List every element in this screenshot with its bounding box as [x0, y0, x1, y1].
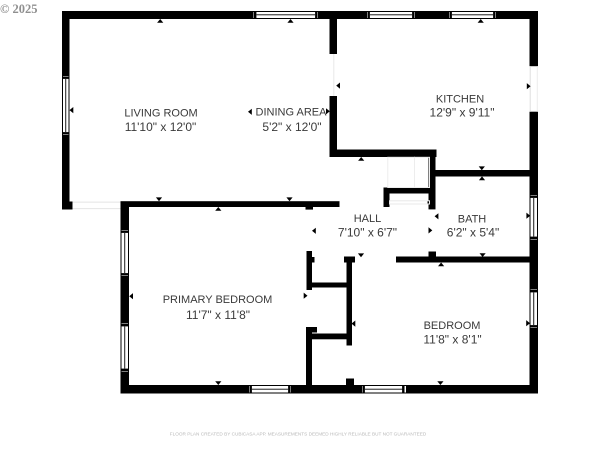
svg-text:LIVING ROOM: LIVING ROOM: [124, 108, 197, 120]
svg-text:12'9" x 9'11": 12'9" x 9'11": [430, 106, 495, 120]
svg-text:7'10" x 6'7": 7'10" x 6'7": [338, 225, 397, 239]
svg-text:BEDROOM: BEDROOM: [424, 320, 481, 332]
svg-text:PRIMARY BEDROOM: PRIMARY BEDROOM: [163, 294, 273, 306]
svg-text:FLOOR PLAN CREATED BY CUBICASA: FLOOR PLAN CREATED BY CUBICASA APP. MEAS…: [170, 432, 427, 437]
svg-text:© 2025: © 2025: [0, 2, 37, 16]
svg-text:11'7" x 11'8": 11'7" x 11'8": [186, 308, 250, 322]
svg-text:BATH: BATH: [458, 214, 487, 226]
svg-text:KITCHEN: KITCHEN: [436, 94, 484, 106]
svg-text:11'8" x 8'1": 11'8" x 8'1": [423, 332, 481, 346]
svg-text:HALL: HALL: [354, 213, 382, 225]
svg-text:11'10" x 12'0": 11'10" x 12'0": [125, 120, 197, 134]
svg-text:6'2" x 5'4": 6'2" x 5'4": [447, 226, 499, 240]
svg-text:5'2" x 12'0": 5'2" x 12'0": [262, 120, 321, 134]
svg-text:DINING AREA: DINING AREA: [256, 107, 328, 119]
